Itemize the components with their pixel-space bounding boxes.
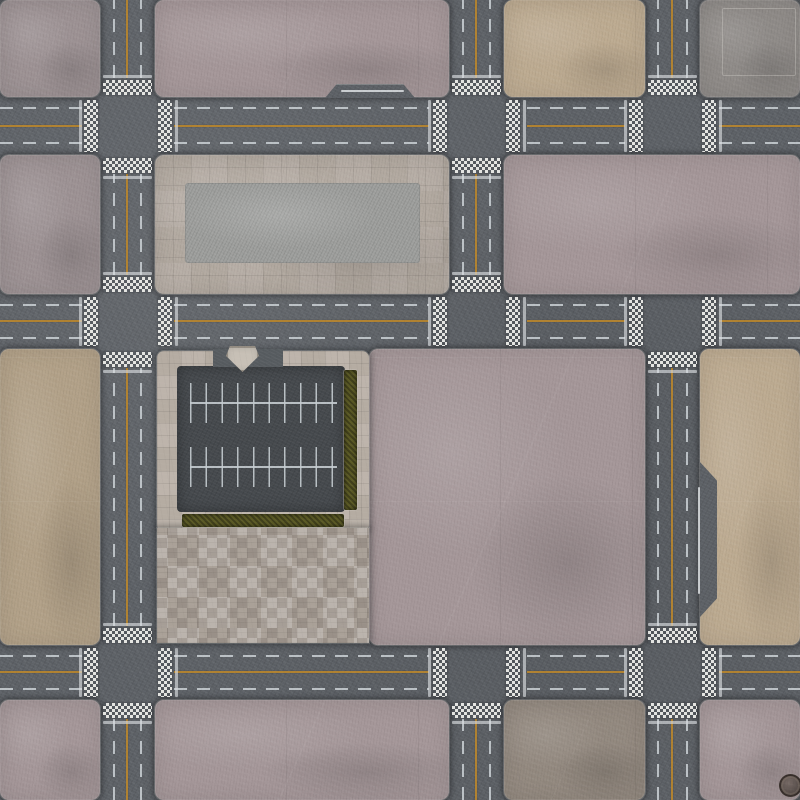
road-v2-center-line <box>475 719 477 800</box>
stop-line <box>175 100 178 152</box>
road-h3-center-line <box>174 671 429 673</box>
feature-parking-line-row2 <box>190 466 337 468</box>
road-h3-lane-dashes <box>719 655 800 657</box>
stop-line <box>428 297 431 346</box>
stop-line <box>79 648 82 697</box>
crosswalk <box>84 648 98 697</box>
crosswalk <box>629 100 643 152</box>
road-v1-lane-dashes <box>113 0 115 78</box>
crosswalk <box>433 297 447 346</box>
road-h2-lane-dashes <box>719 337 800 339</box>
road-h3-lane-dashes <box>174 655 429 657</box>
gaming-mat-city-streets <box>0 0 800 800</box>
crosswalk <box>629 648 643 697</box>
road-h2-lane-dashes <box>0 337 82 339</box>
road-v1-center-line <box>126 368 128 626</box>
road-h2-lane-dashes <box>527 337 625 339</box>
stop-line <box>79 100 82 152</box>
road-v2-lane-dashes <box>462 174 464 275</box>
road-v2-lane-dashes <box>462 719 464 800</box>
road-v3-lane-dashes <box>657 368 659 626</box>
block-b3 <box>504 155 800 294</box>
crosswalk <box>702 100 716 152</box>
stop-line <box>719 100 722 152</box>
crosswalk <box>103 352 152 367</box>
stop-line <box>523 648 526 697</box>
feature-concrete-inset-border <box>722 8 796 76</box>
stop-line <box>624 100 627 152</box>
road-h2-center-line <box>719 320 800 322</box>
road-v1-lane-dashes <box>113 174 115 275</box>
road-v1-lane-dashes <box>140 174 142 275</box>
stop-line <box>624 297 627 346</box>
stop-line <box>452 75 501 78</box>
road-h2-lane-dashes <box>719 304 800 306</box>
road-h3-lane-dashes <box>0 655 82 657</box>
road-h3-center-line <box>719 671 800 673</box>
road-h2-center-line <box>0 320 82 322</box>
road-h1-lane-dashes <box>719 107 800 109</box>
road-v3-lane-dashes <box>686 368 688 626</box>
crosswalk <box>648 80 697 95</box>
road-v2-center-line <box>475 0 477 78</box>
feature-mosaic-plaza <box>157 528 369 643</box>
road-v2-lane-dashes <box>489 0 491 78</box>
stop-line <box>103 75 152 78</box>
road-h1-lane-dashes <box>0 142 82 144</box>
feature-hedge-right <box>344 370 357 510</box>
road-h2-lane-dashes <box>0 304 82 306</box>
block-d3 <box>504 700 645 800</box>
road-v2-lane-dashes <box>489 719 491 800</box>
block-a1 <box>0 0 100 97</box>
stop-line <box>523 297 526 346</box>
stop-line <box>452 176 501 179</box>
crosswalk <box>433 100 447 152</box>
block-c1 <box>0 349 100 645</box>
road-h3-lane-dashes <box>174 688 429 690</box>
crosswalk <box>103 277 152 292</box>
road-h1-lane-dashes <box>174 107 429 109</box>
stop-line <box>428 100 431 152</box>
road-v1-lane-dashes <box>140 719 142 800</box>
road-h1-center-line <box>174 125 429 127</box>
feature-manufacturer-logo-stamp <box>779 774 800 797</box>
crosswalk <box>158 100 172 152</box>
road-v1-lane-dashes <box>140 0 142 78</box>
road-v1-center-line <box>126 0 128 78</box>
crosswalk <box>452 703 501 718</box>
road-v1-lane-dashes <box>140 368 142 626</box>
stop-line <box>624 648 627 697</box>
road-v3-center-line <box>671 0 673 78</box>
crosswalk <box>629 297 643 346</box>
road-v2-lane-dashes <box>462 0 464 78</box>
road-h1-center-line <box>719 125 800 127</box>
crosswalk <box>103 80 152 95</box>
crosswalk <box>84 100 98 152</box>
feature-widening-white-line <box>698 487 700 594</box>
crosswalk <box>158 648 172 697</box>
road-v3-lane-dashes <box>657 719 659 800</box>
crosswalk <box>452 80 501 95</box>
stop-line <box>103 176 152 179</box>
crosswalk <box>103 628 152 643</box>
block-d2 <box>155 700 449 800</box>
road-h2-center-line <box>527 320 625 322</box>
road-h3-lane-dashes <box>719 688 800 690</box>
crosswalk <box>103 703 152 718</box>
crosswalk <box>702 297 716 346</box>
road-v2-lane-dashes <box>489 174 491 275</box>
stop-line <box>648 721 697 724</box>
road-v3-center-line <box>671 368 673 626</box>
feature-hedge-bottom <box>182 514 344 527</box>
road-h3-lane-dashes <box>0 688 82 690</box>
stop-line <box>79 297 82 346</box>
road-v3-center-line <box>671 719 673 800</box>
block-b1 <box>0 155 100 294</box>
crosswalk <box>648 628 697 643</box>
crosswalk <box>506 100 520 152</box>
stop-line <box>648 370 697 373</box>
crosswalk <box>103 158 152 173</box>
road-h2-lane-dashes <box>174 304 429 306</box>
stop-line <box>175 297 178 346</box>
road-v1-center-line <box>126 174 128 275</box>
stop-line <box>452 721 501 724</box>
block-a3 <box>504 0 645 97</box>
road-h1-lane-dashes <box>719 142 800 144</box>
stop-line <box>648 623 697 626</box>
road-v1-center-line <box>126 719 128 800</box>
stop-line <box>103 623 152 626</box>
stop-line <box>523 100 526 152</box>
crosswalk <box>506 297 520 346</box>
road-h1-center-line <box>0 125 82 127</box>
road-v2-center-line <box>475 174 477 275</box>
road-h1-lane-dashes <box>0 107 82 109</box>
stop-line <box>648 75 697 78</box>
block-d1 <box>0 700 100 800</box>
crosswalk <box>452 277 501 292</box>
road-h2-lane-dashes <box>527 304 625 306</box>
road-v3-lane-dashes <box>657 0 659 78</box>
crosswalk <box>648 352 697 367</box>
road-v3-lane-dashes <box>686 0 688 78</box>
road-h1-lane-dashes <box>174 142 429 144</box>
stop-line <box>428 648 431 697</box>
road-h3-center-line <box>527 671 625 673</box>
road-h2-center-line <box>174 320 429 322</box>
road-h3-center-line <box>0 671 82 673</box>
stop-line <box>719 297 722 346</box>
road-h1-lane-dashes <box>527 142 625 144</box>
road-h1-center-line <box>527 125 625 127</box>
crosswalk <box>433 648 447 697</box>
crosswalk <box>158 297 172 346</box>
road-h1-lane-dashes <box>527 107 625 109</box>
stop-line <box>103 370 152 373</box>
stop-line <box>175 648 178 697</box>
crosswalk <box>702 648 716 697</box>
crosswalk <box>452 158 501 173</box>
road-h2-lane-dashes <box>174 337 429 339</box>
stop-line <box>452 272 501 275</box>
crosswalk <box>506 648 520 697</box>
stop-line <box>719 648 722 697</box>
crosswalk <box>84 297 98 346</box>
road-v1-lane-dashes <box>113 719 115 800</box>
road-v3-lane-dashes <box>686 719 688 800</box>
feature-parking-line-row1 <box>190 402 337 404</box>
crosswalk <box>648 703 697 718</box>
stop-line <box>103 272 152 275</box>
stop-line <box>103 721 152 724</box>
feature-layby-white-line <box>341 90 404 92</box>
block-c3 <box>369 349 645 645</box>
feature-road-widening <box>700 462 717 617</box>
road-v1-lane-dashes <box>113 368 115 626</box>
block-a2 <box>155 0 449 97</box>
feature-plaza-concrete-pad <box>185 183 420 263</box>
road-h3-lane-dashes <box>527 655 625 657</box>
road-h3-lane-dashes <box>527 688 625 690</box>
